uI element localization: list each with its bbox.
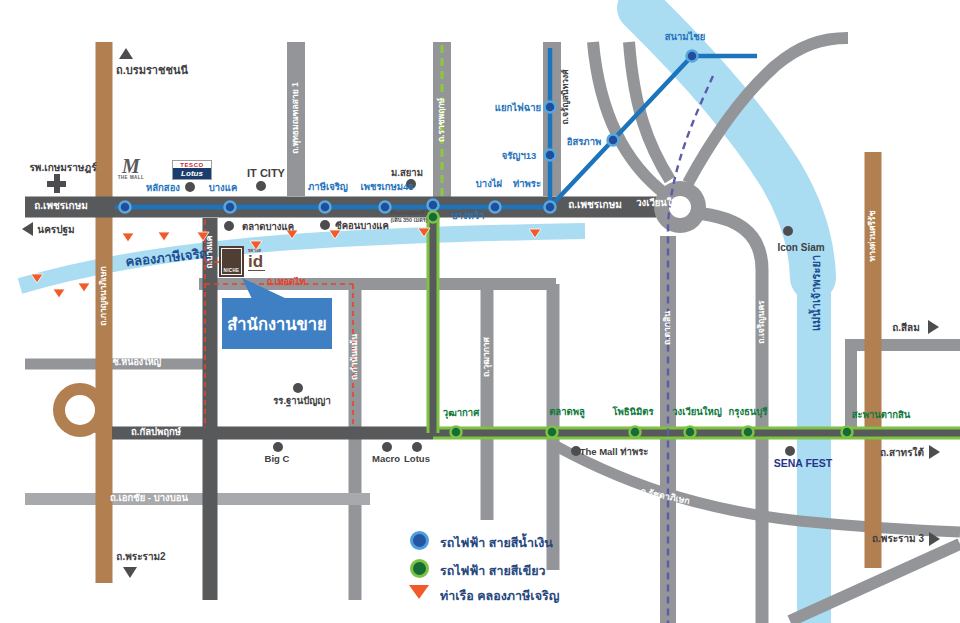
poi-macro: Macro (372, 454, 400, 464)
road-label-taksin: ถ.ตากสิน (663, 311, 672, 345)
road-label-ratchaphruek: ถ.ราชพฤกษ์ (437, 98, 446, 142)
poi-school: รร.ฐานปัญญา (273, 396, 330, 406)
river-label: แม่น้ำเจ้าพระยา (810, 255, 822, 331)
hospital-cross-icon (47, 174, 66, 193)
station-thapra: ท่าพระ (513, 179, 541, 189)
niche-id-logo: นิช ไอดี id (248, 248, 265, 271)
poi-themall-thapra: The Mall ท่าพระ (580, 447, 649, 457)
road-label-charansanitwong: ถ.จรัญสนิทวงศ์ (561, 69, 570, 124)
road-label-silom: ถ.สีลม (892, 322, 920, 333)
road-label-phetkasem-west: ถ.เพชรเกษม (34, 200, 88, 211)
station-sanamchai: สนามไชย (665, 32, 706, 42)
lotus-logo-text: Lotus (173, 168, 211, 179)
road-label-sathon-tai: ถ.สาทรใต้ (880, 447, 924, 458)
tesco-logo-text: TESCO (173, 161, 211, 168)
poi-itcity: IT CITY (247, 167, 285, 179)
station-itsaraphap: อิสรภาพ (567, 137, 601, 147)
themall-bangkhae-logo: M THE MALL (114, 158, 148, 180)
niche-logo-box: NICHE (219, 246, 244, 277)
legend-green-station-icon (410, 559, 429, 578)
station-krungthonburi: กรุงธนบุรี (729, 407, 768, 417)
direction-nakhonpathom: นครปฐม (37, 224, 74, 235)
legend-blue-line-label: รถไฟฟ้า สายสีน้ำเงิน (440, 533, 553, 553)
poi-hospital: รพ.เกษมราษฎร์ (29, 162, 96, 173)
poi-lotus: Lotus (404, 454, 430, 464)
legend-pier-icon (409, 585, 429, 599)
road-label-phetkasem-east: ถ.เพชรเกษม (568, 199, 622, 210)
silom-arrow-icon (928, 320, 939, 334)
poi-sena-fest: SENA FEST (774, 458, 833, 470)
poi-msiam: ม.สยาม (391, 168, 423, 178)
poi-talat-bangkhae: ตลาดบางแค (242, 222, 294, 232)
road-label-phutthamonthon1: ถ.พุทธมณฑลสาย 1 (291, 82, 300, 154)
niche-id-mark: id (248, 254, 265, 271)
bangwa-note-line1: ที่สะพานลอยฟ้า (386, 210, 432, 217)
station-phonimit: โพธินิมิตร (612, 407, 653, 417)
road-label-kamnanmaen: ถ.กำนันแม้น (350, 334, 359, 380)
road-label-rama2: ถ.พระราม2 (116, 551, 165, 562)
location-map: ถ.บรมราชชนนี นครปฐม รพ.เกษมราษฎร์ M THE … (0, 0, 960, 623)
road-label-wongwianyai: วงเวียนใหญ่ (636, 198, 686, 208)
station-talatphlu: ตลาดพลู (549, 407, 585, 417)
poi-seacon-bangkhae: ซีคอนบางแค (335, 221, 388, 231)
water-layer (20, 8, 831, 623)
legend-pier-label: ท่าเรือ คลองภาษีเจริญ (440, 586, 559, 606)
road-label-wutthakat-rd: ถ.วุฒากาศ (482, 337, 491, 377)
road-label-rama3: ถ.พระราม 3 (872, 533, 924, 544)
tesco-lotus-logo: TESCO Lotus (172, 160, 212, 180)
road-label-bangkhae: ถ.บางแค (205, 236, 214, 269)
themall-m-mark: M (114, 158, 148, 175)
rama2-arrow-icon (123, 567, 137, 578)
road-label-charoennakhon: ถ.เจริญนคร (757, 300, 766, 343)
station-bangwa: บางหว้า (452, 211, 485, 221)
station-wutthakat: วุฒากาศ (443, 408, 479, 418)
poi-icon-siam: Icon Siam (777, 242, 824, 253)
niche-logo-text: NICHE (223, 268, 239, 273)
road-label-ekkachai-bangbon: ถ.เอกชัย - บางบอน (110, 493, 188, 503)
station-saphantaksin: สะพานตากสิน (852, 410, 911, 420)
sathon-arrow-icon (929, 445, 940, 459)
bangwa-note-line2: (เดิน 350 เมตร) (386, 217, 432, 224)
road-label-borommaratchachonnani: ถ.บรมราชชนนี (116, 64, 188, 76)
poi-bigc: Big C (265, 454, 290, 464)
station-bangkhae: บางแค (209, 183, 237, 193)
legend-blue-station-icon (410, 531, 429, 550)
road-label-nongyai: ซ.หนองใหญ่ (113, 358, 162, 368)
legend-green-line-label: รถไฟฟ้า สายสีเขียว (440, 561, 546, 581)
road-label-kanlapaphruek: ถ.กัลปพฤกษ์ (131, 427, 181, 437)
station-yaekfaichai: แยกไฟฉาย (495, 103, 541, 113)
station-charan13: จรัญฯ13 (502, 151, 537, 161)
station-wongwianyai: วงเวียนใหญ่ (672, 407, 722, 417)
themall-logo-text: THE MALL (114, 175, 148, 180)
sales-office-callout: สำนักงานขาย (222, 298, 332, 349)
north-arrow-icon (119, 48, 133, 59)
road-label-thoetthai: ถ.เทอดไท (267, 278, 306, 288)
station-phasicharoen: ภาษีเจริญ (308, 182, 348, 192)
station-phetkasem48: เพชรเกษม48 (360, 182, 413, 192)
road-label-sirat-expressway: ทางด่วนศรีรัช (868, 211, 877, 262)
rama3-arrow-icon (929, 532, 940, 546)
station-bangphai: บางไผ่ (476, 179, 502, 189)
road-label-kanchanaphisek: ถ.กาญจนาภิเษก (99, 266, 108, 326)
sales-office-label: สำนักงานขาย (227, 311, 326, 337)
bangwa-walk-note: ที่สะพานลอยฟ้า (เดิน 350 เมตร) (386, 210, 432, 223)
west-arrow-icon (22, 222, 33, 236)
station-laksong: หลักสอง (146, 183, 180, 193)
